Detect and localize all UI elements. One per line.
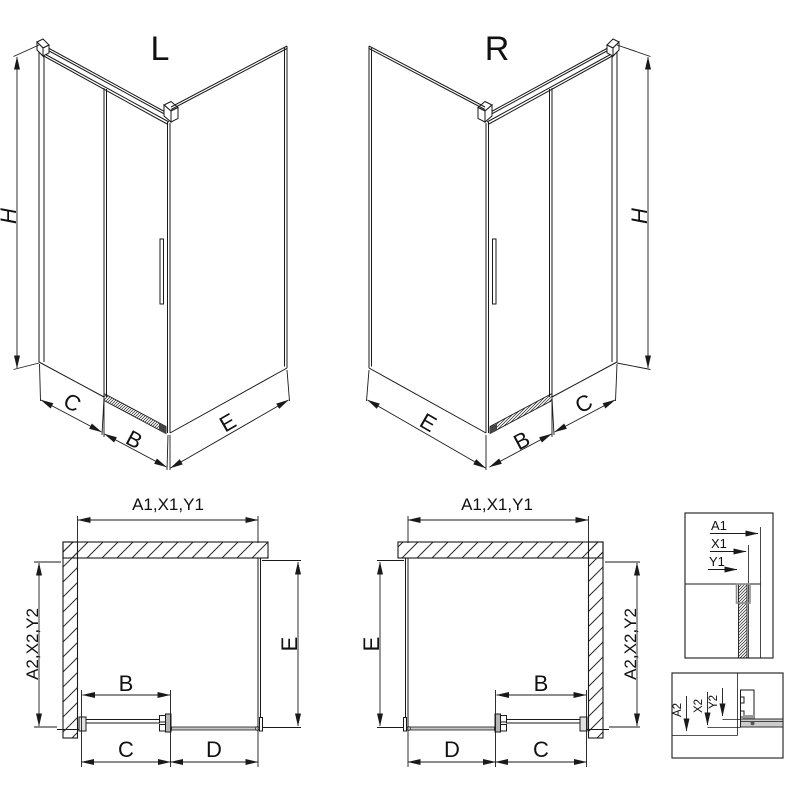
dim-label-d: D xyxy=(444,737,460,762)
variant-label-left: L xyxy=(151,30,170,68)
dimension-c-right: C xyxy=(552,364,617,435)
wall-bracket xyxy=(79,717,86,731)
corner-post xyxy=(486,122,489,433)
detail-view-bottom-profile: A2 X2 Y2 xyxy=(672,673,783,758)
sliding-door xyxy=(490,239,552,434)
glass-section xyxy=(739,584,748,658)
plan-view-right: A1,X1,Y1 E xyxy=(359,495,640,767)
top-wall xyxy=(63,542,268,558)
iso-view-left: L xyxy=(0,30,290,470)
sliding-door xyxy=(104,239,166,434)
dim-label-a2: A2,X2,Y2 xyxy=(23,608,42,680)
bottom-guide-mechanism xyxy=(741,690,784,727)
fixed-panel-plan xyxy=(410,727,495,730)
dim-label-e: E xyxy=(277,637,302,652)
dim-label-h: H xyxy=(0,208,21,224)
detail-label-y2: Y2 xyxy=(708,695,720,709)
dimension-c-left: C xyxy=(40,364,105,435)
detail-label-a2: A2 xyxy=(672,703,684,717)
dimension-a2-left-plan: A2,X2,Y2 xyxy=(23,562,61,727)
dimension-a2-right-plan: A2,X2,Y2 xyxy=(605,562,640,727)
left-side-panel xyxy=(39,47,107,397)
dim-label-b: B xyxy=(509,426,534,455)
plan-top-dim-label: A1,X1,Y1 xyxy=(132,495,204,514)
dim-label-b: B xyxy=(534,671,549,696)
dim-label-c: C xyxy=(118,737,134,762)
door-handle xyxy=(160,239,164,304)
dim-label-e: E xyxy=(416,408,441,437)
corner-post xyxy=(168,122,171,433)
variant-label-right: R xyxy=(485,30,510,68)
detail-label-y1: Y1 xyxy=(709,554,725,569)
roller-block xyxy=(160,725,166,732)
return-panel xyxy=(369,46,486,433)
left-wall xyxy=(63,542,78,738)
return-panel-plan xyxy=(404,558,409,731)
return-panel xyxy=(170,46,287,433)
dim-label-a2: A2,X2,Y2 xyxy=(621,608,640,680)
detail-label-x2: X2 xyxy=(693,699,705,713)
dim-label-b: B xyxy=(122,425,147,454)
dim-label-b: B xyxy=(119,671,134,696)
dim-label-c: C xyxy=(59,388,85,418)
detail-view-top-profile: A1 X1 Y1 xyxy=(685,513,773,658)
fixed-panel-plan xyxy=(172,727,257,730)
roller-block xyxy=(160,716,166,723)
dimension-e-left: E xyxy=(170,370,290,470)
dim-label-h: H xyxy=(627,208,652,224)
door-handle xyxy=(493,239,497,304)
dimension-a1-left-plan xyxy=(78,516,259,543)
dim-label-e: E xyxy=(359,637,384,652)
dimension-h-left: H xyxy=(0,45,39,370)
iso-view-right: R xyxy=(367,30,653,470)
wall-bracket xyxy=(580,717,587,731)
dimension-a1-right-plan xyxy=(408,516,589,543)
roller-block xyxy=(501,725,507,732)
return-panel-plan xyxy=(258,558,263,731)
dimension-e-left-plan: E xyxy=(262,561,302,728)
dim-label-c: C xyxy=(533,737,549,762)
top-wall xyxy=(398,542,603,558)
door-assembly-plan xyxy=(57,714,259,732)
roller-block xyxy=(501,716,507,723)
door-assembly-plan xyxy=(407,714,609,732)
dimension-e-right: E xyxy=(367,370,487,470)
dim-label-e: E xyxy=(215,408,240,437)
dimension-h-right: H xyxy=(617,45,652,370)
plan-view-left: A1,X1,Y1 E xyxy=(23,495,302,767)
detail-label-a1: A1 xyxy=(711,518,727,533)
plan-top-dim-label: A1,X1,Y1 xyxy=(461,495,533,514)
right-side-panel xyxy=(550,47,618,397)
dimension-e-right-plan: E xyxy=(359,561,404,728)
dim-label-c: C xyxy=(571,389,597,419)
shower-enclosure-technical-drawing: L xyxy=(0,0,800,800)
detail-label-x1: X1 xyxy=(711,536,727,551)
dim-label-d: D xyxy=(206,737,222,762)
right-wall xyxy=(589,542,604,738)
drawing-svg: L xyxy=(0,0,800,800)
